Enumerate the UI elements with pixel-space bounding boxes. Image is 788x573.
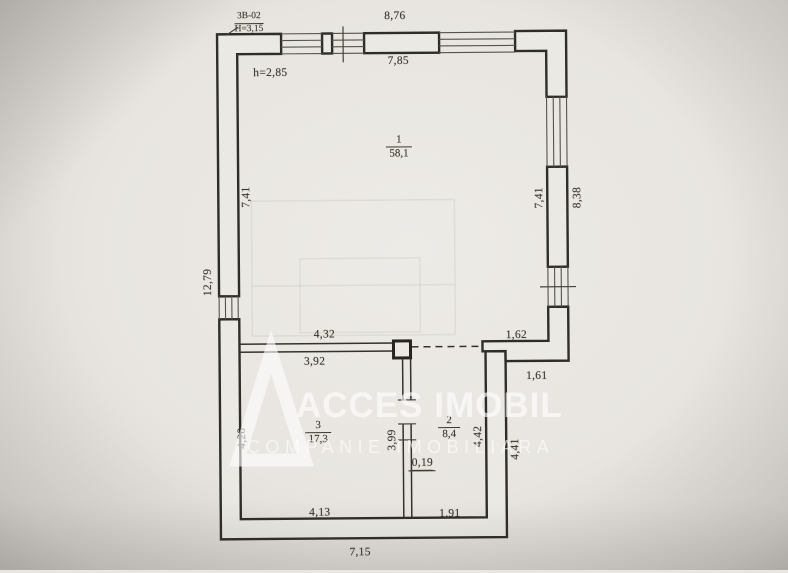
labels-layer: 3B-02 H=3,15 h=2,85 8,767,857,4112,797,4… bbox=[0, 0, 788, 573]
dimension-label: 1,91 bbox=[439, 507, 460, 519]
room-label-1: 158,1 bbox=[386, 134, 412, 159]
room-label-3: 317,3 bbox=[305, 420, 331, 445]
dimension-label: 8,76 bbox=[384, 10, 405, 22]
dimension-label: 4,41 bbox=[509, 438, 521, 459]
room-number: 1 bbox=[386, 134, 412, 145]
room-number: 2 bbox=[438, 415, 460, 426]
dimension-label: 4,32 bbox=[314, 328, 335, 340]
dimension-label: 4,20 bbox=[236, 427, 248, 448]
room-area: 8,4 bbox=[438, 429, 460, 440]
room-label-2: 28,4 bbox=[438, 415, 460, 440]
dimension-label: 8,38 bbox=[571, 187, 583, 208]
dimension-label: 0,19 bbox=[412, 457, 433, 471]
room-area: 17,3 bbox=[305, 434, 331, 445]
room-area: 58,1 bbox=[386, 148, 412, 159]
scanned-floor-plan-photo: 3B-02 H=3,15 h=2,85 8,767,857,4112,797,4… bbox=[0, 0, 788, 570]
dimension-label: 7,15 bbox=[349, 546, 370, 558]
title-code: 3B-02 bbox=[234, 12, 263, 22]
dimension-label: 3,92 bbox=[304, 356, 325, 368]
room-number: 3 bbox=[305, 420, 331, 431]
floor-plan: 3B-02 H=3,15 h=2,85 8,767,857,4112,797,4… bbox=[0, 0, 788, 573]
title-building-height: H=3,15 bbox=[235, 25, 264, 35]
ceiling-height-label: h=2,85 bbox=[253, 67, 287, 79]
dimension-label: 7,41 bbox=[533, 187, 545, 208]
title-block: 3B-02 H=3,15 bbox=[234, 12, 263, 34]
dimension-label: 7,85 bbox=[388, 55, 409, 67]
dimension-label: 1,61 bbox=[526, 370, 547, 382]
dimension-label: 3,99 bbox=[386, 429, 398, 450]
dimension-label: 12,79 bbox=[202, 269, 214, 296]
dimension-label: 4,42 bbox=[472, 426, 484, 447]
dimension-label: 7,41 bbox=[240, 186, 252, 207]
dimension-label: 1,62 bbox=[506, 329, 527, 341]
dimension-label: 4,13 bbox=[309, 507, 330, 519]
